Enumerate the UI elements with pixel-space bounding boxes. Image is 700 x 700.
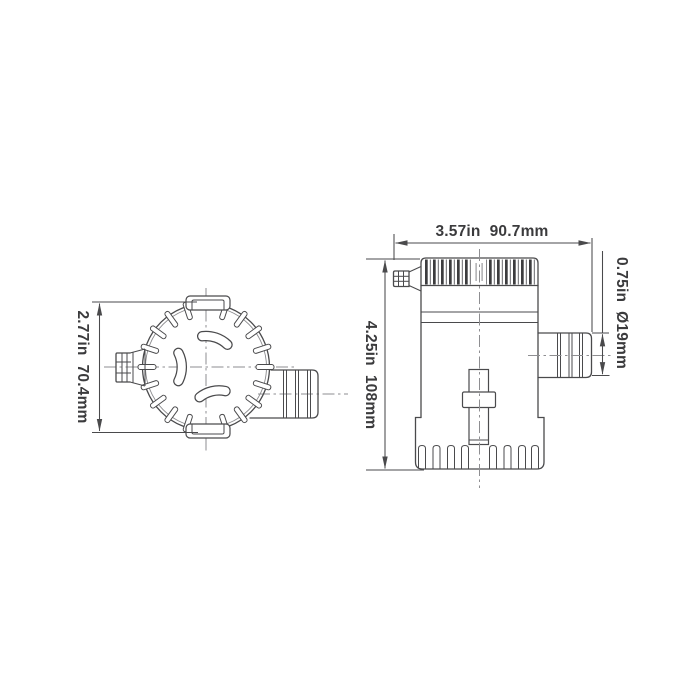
mounting-tab-bottom: [186, 424, 230, 438]
dim-label-top-width: 3.57in 90.7mm: [435, 223, 548, 241]
side-view: [394, 249, 613, 488]
outlet-port-side-view: [538, 333, 592, 378]
dim-outlet-diameter-inches: 0.75in: [612, 257, 630, 302]
dim-label-body-height: 4.25in 108mm: [361, 321, 379, 430]
mounting-tab-top: [186, 296, 230, 310]
inlet-barb-side-view: [394, 267, 422, 292]
dim-body-height-metric: 108mm: [361, 375, 379, 429]
pump-drawing-svg: [0, 0, 700, 700]
strainer-slots: [419, 446, 539, 469]
dim-left-height-metric: 70.4mm: [73, 365, 91, 424]
dim-top-width-inches: 3.57in: [435, 223, 480, 241]
dim-label-left-height: 2.77in 70.4mm: [73, 310, 91, 423]
dim-outlet-diameter: [592, 251, 610, 376]
dim-label-outlet-diameter: 0.75in Ø19mm: [612, 257, 630, 369]
dim-outlet-diameter-metric: Ø19mm: [612, 311, 630, 369]
top-view: [104, 288, 348, 451]
technical-drawing-page: 3.57in 90.7mm 2.77in 70.4mm 4.25in 108mm…: [0, 0, 700, 700]
dim-top-width-metric: 90.7mm: [490, 223, 549, 241]
dim-left-height-inches: 2.77in: [73, 310, 91, 355]
dim-body-height-inches: 4.25in: [361, 321, 379, 366]
